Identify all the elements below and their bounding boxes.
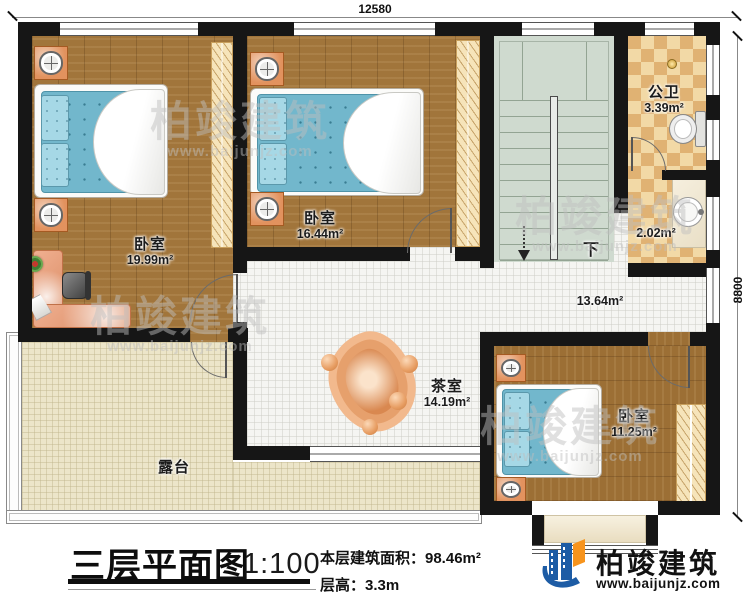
- lamp-icon: [501, 481, 521, 498]
- company-logo-website: www.baijunjz.com: [596, 576, 721, 591]
- bedroom1-nightstand-bottom: [34, 198, 68, 232]
- plan-scale: 1:100: [243, 548, 321, 581]
- bedroom2-nightstand-top: [250, 52, 284, 86]
- dimension-line-top: [12, 17, 738, 18]
- company-logo-icon: [533, 538, 591, 594]
- terrace-railing-left: [6, 332, 22, 524]
- pillow: [504, 392, 530, 430]
- pillow: [41, 95, 69, 141]
- window-right-3: [706, 197, 720, 250]
- window-right-4: [706, 268, 720, 323]
- washroom-label: 2.02m²: [616, 226, 696, 240]
- bedroom3-door-leaf: [688, 346, 690, 388]
- bedroom3-label: 卧室11.25m²: [574, 408, 694, 440]
- wall-tearoom-step-vertical: [233, 342, 247, 460]
- wall-stair-right: [614, 22, 628, 213]
- window-top-1: [60, 22, 198, 36]
- title-underline-thin: [68, 589, 316, 590]
- tea-cushion: [362, 419, 378, 435]
- hallway-label: 13.64m²: [550, 294, 650, 308]
- bedroom1-nightstand-top: [34, 46, 68, 80]
- dimension-tick: [731, 11, 742, 22]
- window-top-4: [645, 22, 694, 36]
- window-right-1: [706, 45, 720, 95]
- floor-height-text: 层高：3.3m: [320, 574, 399, 595]
- bedroom2-closet: [456, 40, 480, 247]
- wall-bathroom-partition: [662, 170, 706, 180]
- dimension-right: 8800: [731, 268, 745, 312]
- window-top-2: [294, 22, 435, 36]
- terrace-door-threshold: [190, 328, 228, 342]
- bedroom1-closet: [211, 42, 233, 248]
- stair-railing: [550, 96, 558, 260]
- dimension-tick: [7, 11, 18, 22]
- toilet-bowl: [669, 114, 697, 144]
- wall-tearoom-step-horizontal: [233, 446, 310, 460]
- wall-washroom-bottom: [628, 263, 706, 277]
- wall-bedroom3-top-a: [480, 332, 648, 346]
- bathroom-door-leaf: [631, 137, 633, 171]
- stair-landing-line-right: [586, 42, 587, 100]
- stair-landing-line-left: [522, 42, 523, 100]
- tea-cushion: [400, 355, 418, 373]
- wall-bedroom1-right: [233, 36, 247, 273]
- lamp-icon: [501, 359, 521, 378]
- light-fixture-icon: [667, 59, 677, 69]
- lamp-icon: [255, 57, 278, 80]
- lamp-icon: [39, 51, 62, 74]
- wall-stair-left: [480, 22, 494, 268]
- bedroom1-door-leaf: [236, 274, 238, 322]
- tea-cushion: [321, 354, 338, 371]
- bedroom2-bed: [250, 88, 424, 196]
- bedroom1-bed: [34, 84, 168, 198]
- tearoom-label: 茶室14.19m²: [387, 378, 507, 410]
- wall-bedroom3-top-b: [690, 332, 706, 346]
- bay-window-stub-right: [646, 515, 658, 545]
- wall-bedroom3-bottom-b: [658, 501, 706, 515]
- pillow: [41, 143, 69, 187]
- bedroom3-door-threshold: [648, 332, 690, 346]
- pillow: [504, 431, 530, 467]
- wall-bedroom2-bottom-b: [455, 247, 480, 261]
- bedroom2-label: 卧室16.44m²: [260, 210, 380, 242]
- window-top-3: [522, 22, 594, 36]
- wall-left: [18, 22, 32, 342]
- bedroom3-nightstand-bottom: [496, 477, 526, 502]
- wall-bedroom3-left: [480, 332, 494, 515]
- stairs-down-label: 下: [576, 242, 606, 260]
- stair-arrow-head: [518, 250, 530, 261]
- floor-area-text: 本层建筑面积：98.46m²: [320, 547, 481, 568]
- terrace-railing-bottom: [6, 510, 482, 524]
- wall-bedroom2-bottom-a: [247, 247, 410, 261]
- wall-bedroom1-bottom-a: [18, 328, 190, 342]
- basin-faucet: [698, 209, 704, 215]
- pillow: [259, 143, 287, 185]
- terrace-door-leaf: [225, 342, 227, 378]
- floor-plan-canvas: 卧室19.99m² 卧室16.44m² 卧室11.25m² 公卫3.39m² 2…: [0, 0, 750, 599]
- dimension-top: 12580: [344, 2, 406, 16]
- window-right-2: [706, 120, 720, 160]
- pillow: [259, 97, 287, 141]
- terrace-floor-right: [233, 462, 480, 510]
- lamp-icon: [39, 203, 62, 226]
- stair-arrow-line: [523, 226, 525, 252]
- wall-bedroom1-bottom-b: [228, 328, 248, 342]
- bathroom-label: 公卫3.39m²: [624, 84, 704, 116]
- bedroom2-door-leaf: [450, 208, 452, 253]
- terrace-label: 露台: [134, 459, 214, 476]
- wall-bedroom3-bottom-a: [480, 501, 532, 515]
- window-tearoom-south: [310, 446, 480, 462]
- desk-chair-back: [85, 271, 91, 300]
- bedroom1-label: 卧室19.99m²: [90, 236, 210, 268]
